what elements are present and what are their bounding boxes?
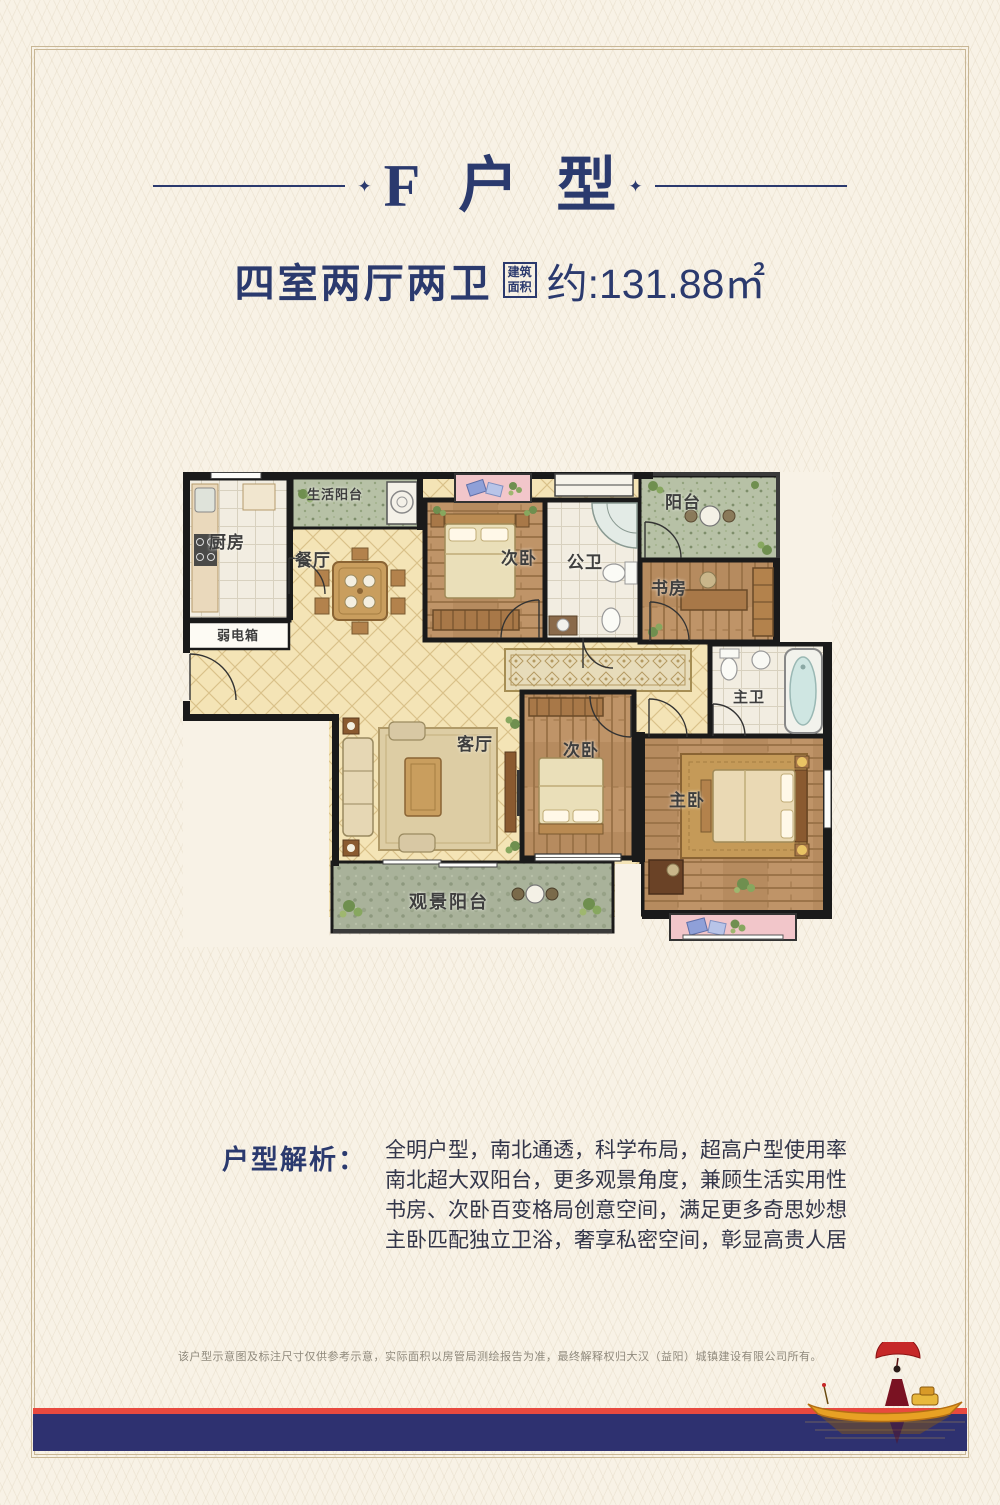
label-kitchen: 厨房: [209, 528, 245, 553]
poster-page: { "header": { "title": "F户型", "subtitle_…: [0, 0, 1000, 1505]
label-view-balcony: 观景阳台: [409, 888, 489, 914]
star-ornament-left-icon: ✦: [357, 178, 371, 195]
title-rule-left: [153, 185, 345, 187]
title-rule-right: [655, 185, 847, 187]
star-ornament-right-icon: ✦: [628, 178, 642, 195]
built-area-label-box: 建筑 面积: [503, 262, 537, 299]
label-living: 客厅: [457, 730, 493, 755]
label-bedroom2-middle: 次卧: [563, 736, 599, 761]
analysis-line-1: 全明户型，南北通透，科学布局，超高户型使用率: [385, 1136, 847, 1166]
analysis-paragraph: 全明户型，南北通透，科学布局，超高户型使用率 南北超大双阳台，更多观景角度，兼顾…: [385, 1136, 847, 1256]
label-dining: 餐厅: [295, 546, 331, 571]
analysis-section: 户型解析： 全明户型，南北通透，科学布局，超高户型使用率 南北超大双阳台，更多观…: [222, 1136, 882, 1256]
built-area-label-line2: 面积: [508, 281, 532, 295]
hallway-rug: [505, 649, 691, 691]
label-north-balcony: 阳台: [665, 488, 701, 513]
bay-window-south: [670, 914, 796, 940]
unit-subtitle: 四室两厅两卫 建筑 面积 约:131.88㎡: [0, 250, 1000, 310]
analysis-heading: 户型解析：: [222, 1136, 367, 1177]
analysis-line-4: 主卧匹配独立卫浴，奢享私密空间，彰显高贵人居: [385, 1226, 847, 1256]
label-public-bathroom: 公卫: [567, 548, 603, 573]
room-count-text: 四室两厅两卫: [235, 251, 493, 309]
label-bedroom2-north: 次卧: [501, 544, 537, 569]
label-study: 书房: [651, 574, 687, 599]
page-header: ✦ F户型 ✦: [0, 156, 1000, 216]
analysis-line-2: 南北超大双阳台，更多观景角度，兼顾生活实用性: [385, 1166, 847, 1196]
analysis-line-3: 书房、次卧百变格局创意空间，满足更多奇思妙想: [385, 1196, 847, 1226]
label-master-bathroom: 主卫: [733, 686, 765, 707]
bay-window-north: [455, 474, 531, 502]
boat-illustration: [800, 1342, 970, 1452]
page-title: F户型: [384, 156, 655, 216]
boat-hull: [808, 1383, 962, 1422]
built-area-value: 约:131.88㎡: [547, 250, 766, 310]
floorplan: 厨房 弱电箱 生活阳台 餐厅 次卧 公卫 阳台 书房 主卫 客厅 次卧 主卧 观…: [183, 472, 832, 947]
built-area-label-line1: 建筑: [508, 266, 532, 280]
washing-machine: [387, 482, 417, 524]
label-master-bedroom: 主卧: [669, 786, 705, 811]
label-weak-current-box: 弱电箱: [187, 625, 289, 644]
label-service-balcony: 生活阳台: [307, 484, 363, 503]
